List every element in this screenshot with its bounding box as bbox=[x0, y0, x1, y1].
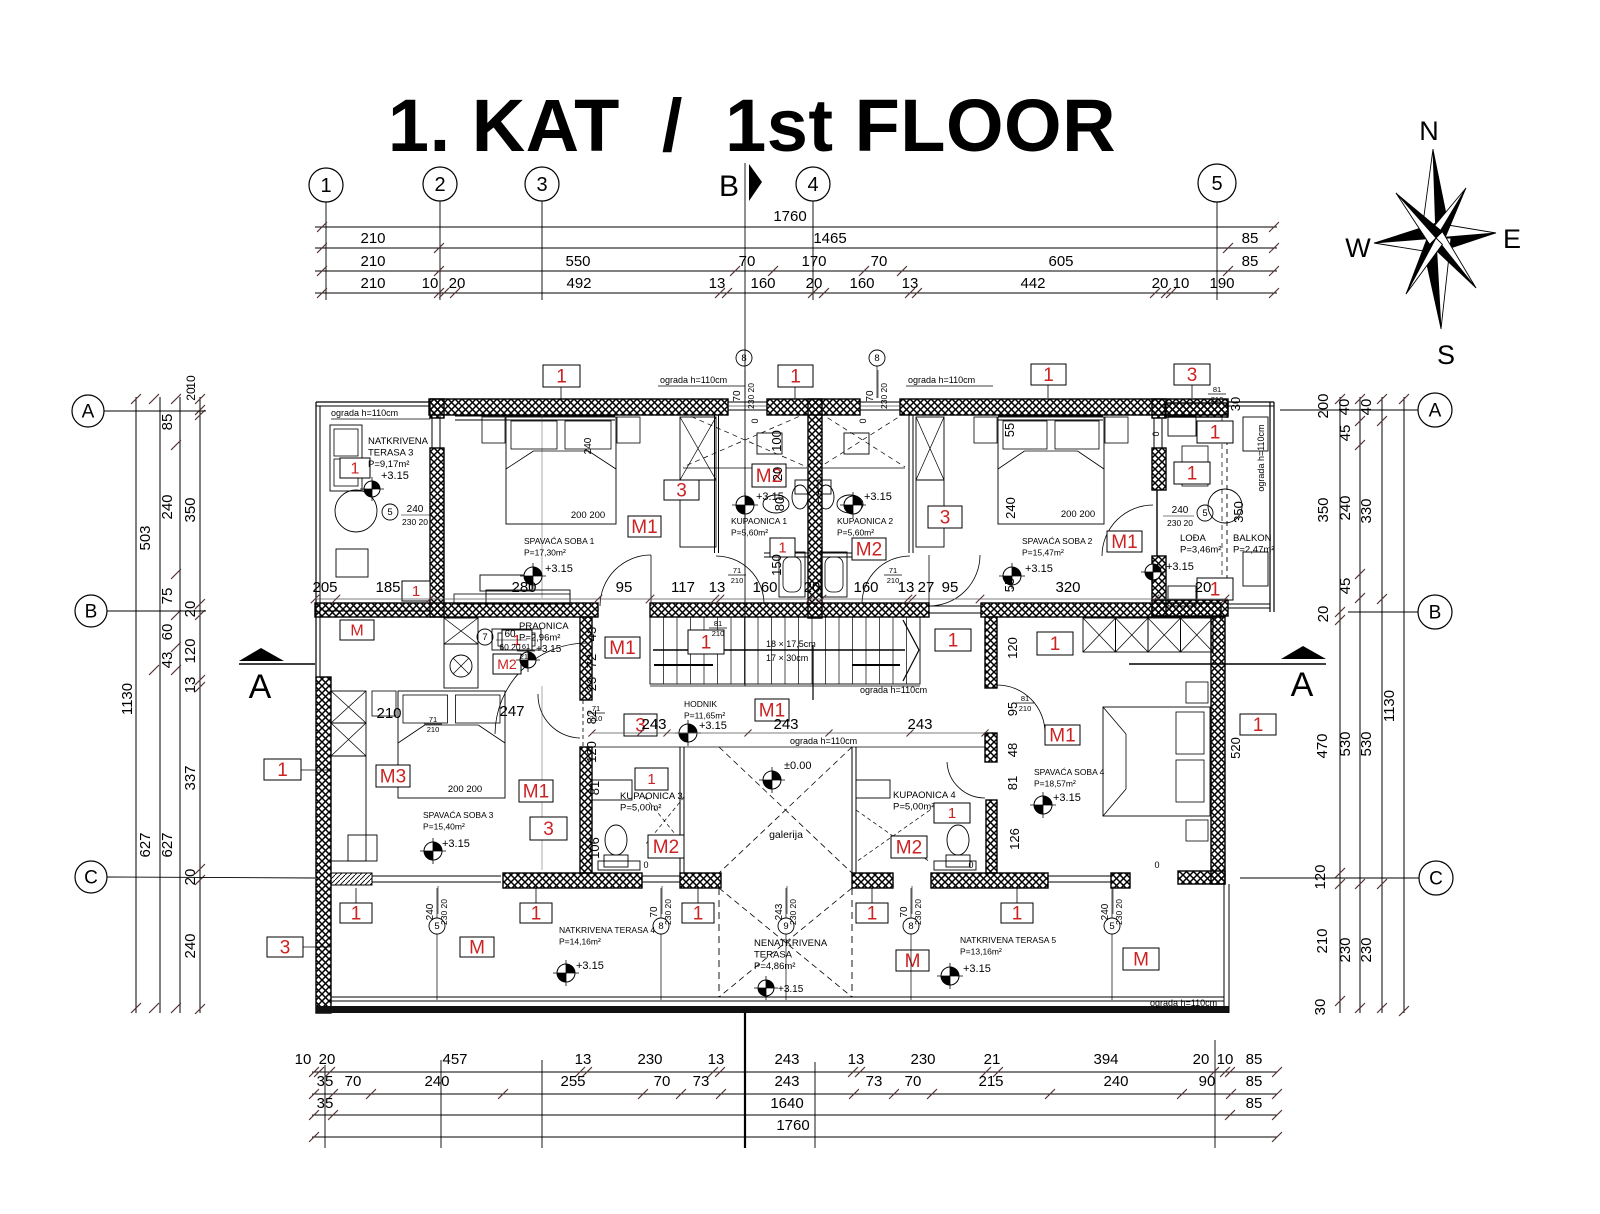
svg-text:1: 1 bbox=[948, 630, 959, 651]
svg-text:120: 120 bbox=[584, 741, 599, 763]
svg-text:73: 73 bbox=[693, 1073, 710, 1090]
svg-text:17 × 30cm: 17 × 30cm bbox=[766, 653, 808, 663]
svg-text:520: 520 bbox=[1228, 737, 1243, 759]
svg-text:35: 35 bbox=[317, 1095, 334, 1112]
svg-text:1: 1 bbox=[1253, 715, 1264, 736]
svg-text:160: 160 bbox=[750, 275, 775, 292]
svg-text:1: 1 bbox=[778, 540, 786, 557]
svg-text:85: 85 bbox=[1246, 1051, 1263, 1068]
svg-text:350: 350 bbox=[182, 497, 199, 522]
svg-text:8: 8 bbox=[874, 353, 879, 364]
svg-text:45: 45 bbox=[1337, 578, 1354, 595]
svg-text:A: A bbox=[1429, 401, 1442, 422]
svg-text:530: 530 bbox=[1358, 731, 1375, 756]
svg-text:200 200: 200 200 bbox=[1061, 509, 1095, 520]
svg-text:1. KAT / 1st FLOOR: 1. KAT / 1st FLOOR bbox=[388, 84, 1116, 167]
svg-text:0: 0 bbox=[643, 860, 648, 870]
svg-text:200 200: 200 200 bbox=[448, 784, 482, 795]
svg-text:1: 1 bbox=[531, 903, 542, 924]
svg-text:1: 1 bbox=[1210, 422, 1221, 443]
svg-text:45: 45 bbox=[1337, 425, 1354, 442]
svg-text:0: 0 bbox=[968, 860, 973, 870]
svg-text:23: 23 bbox=[584, 677, 599, 691]
svg-text:230 20: 230 20 bbox=[663, 899, 673, 925]
svg-text:0: 0 bbox=[858, 418, 868, 423]
svg-text:120: 120 bbox=[182, 638, 199, 663]
svg-text:3: 3 bbox=[676, 480, 687, 501]
svg-text:35: 35 bbox=[317, 1073, 334, 1090]
svg-text:81: 81 bbox=[587, 781, 602, 795]
svg-text:240: 240 bbox=[424, 1073, 449, 1090]
svg-text:SPAVAĆA SOBA 4: SPAVAĆA SOBA 4 bbox=[1034, 767, 1105, 777]
svg-text:72: 72 bbox=[584, 654, 599, 668]
svg-text:TERASA: TERASA bbox=[754, 950, 793, 961]
svg-text:B: B bbox=[1429, 603, 1442, 624]
svg-text:P=5,00m²: P=5,00m² bbox=[620, 803, 661, 814]
svg-text:85: 85 bbox=[1246, 1095, 1263, 1112]
svg-text:70: 70 bbox=[871, 253, 888, 270]
svg-text:M1: M1 bbox=[609, 638, 635, 659]
svg-text:210: 210 bbox=[1019, 704, 1032, 713]
svg-text:200 200: 200 200 bbox=[571, 510, 605, 521]
svg-text:20: 20 bbox=[1195, 579, 1212, 596]
svg-text:NATKRIVENA TERASA 4: NATKRIVENA TERASA 4 bbox=[559, 925, 655, 935]
svg-text:1: 1 bbox=[647, 771, 655, 788]
svg-text:470: 470 bbox=[1314, 733, 1331, 758]
svg-text:210: 210 bbox=[520, 652, 533, 661]
svg-text:1: 1 bbox=[701, 632, 712, 653]
svg-text:85: 85 bbox=[159, 414, 176, 431]
svg-text:21: 21 bbox=[984, 1051, 1001, 1068]
svg-text:190: 190 bbox=[1209, 275, 1234, 292]
svg-text:160: 160 bbox=[853, 579, 878, 596]
svg-text:+3.15: +3.15 bbox=[1166, 561, 1194, 573]
svg-text:1640: 1640 bbox=[770, 1095, 803, 1112]
svg-text:±0.00: ±0.00 bbox=[784, 760, 811, 772]
svg-text:20: 20 bbox=[1315, 606, 1332, 623]
svg-text:13: 13 bbox=[848, 1051, 865, 1068]
svg-text:85: 85 bbox=[1242, 230, 1259, 247]
svg-text:M: M bbox=[905, 951, 921, 972]
svg-text:NATKRIVENA TERASA 5: NATKRIVENA TERASA 5 bbox=[960, 935, 1056, 945]
svg-text:0: 0 bbox=[1151, 431, 1161, 436]
svg-text:70: 70 bbox=[345, 1073, 362, 1090]
svg-text:3: 3 bbox=[1187, 365, 1198, 386]
svg-text:3: 3 bbox=[280, 937, 291, 958]
svg-text:NENATKRIVENA: NENATKRIVENA bbox=[754, 938, 828, 949]
svg-text:240: 240 bbox=[407, 504, 424, 515]
svg-text:550: 550 bbox=[565, 253, 590, 270]
svg-text:S: S bbox=[1437, 340, 1455, 370]
svg-text:5: 5 bbox=[1211, 173, 1222, 195]
svg-text:230: 230 bbox=[1337, 937, 1354, 962]
svg-text:P=11,65m²: P=11,65m² bbox=[684, 711, 725, 721]
svg-text:210: 210 bbox=[376, 705, 401, 722]
svg-text:SPAVAĆA SOBA 3: SPAVAĆA SOBA 3 bbox=[423, 810, 494, 820]
svg-text:M1: M1 bbox=[1111, 532, 1137, 553]
svg-text:+3.15: +3.15 bbox=[442, 838, 470, 850]
svg-text:71: 71 bbox=[429, 715, 437, 724]
svg-text:70: 70 bbox=[905, 1073, 922, 1090]
svg-text:+3.15: +3.15 bbox=[381, 470, 409, 482]
svg-text:LOĐA: LOĐA bbox=[1180, 533, 1207, 544]
svg-text:P=2,47m²: P=2,47m² bbox=[1233, 545, 1274, 556]
svg-text:1: 1 bbox=[351, 903, 362, 924]
svg-text:M: M bbox=[1133, 949, 1149, 970]
svg-text:48: 48 bbox=[1005, 743, 1020, 757]
svg-text:BALKON: BALKON bbox=[1233, 533, 1272, 544]
svg-text:210: 210 bbox=[1314, 928, 1331, 953]
svg-text:240: 240 bbox=[1337, 495, 1354, 520]
svg-text:+3.15: +3.15 bbox=[864, 491, 892, 503]
svg-text:P=3,46m²: P=3,46m² bbox=[1180, 545, 1221, 556]
svg-text:TERASA 3: TERASA 3 bbox=[368, 448, 413, 459]
svg-text:240: 240 bbox=[1103, 1073, 1128, 1090]
svg-text:30: 30 bbox=[1228, 397, 1243, 411]
svg-text:126: 126 bbox=[1007, 828, 1022, 850]
svg-text:70: 70 bbox=[732, 390, 743, 402]
svg-text:95: 95 bbox=[616, 579, 633, 596]
svg-text:M1: M1 bbox=[631, 517, 657, 538]
svg-text:330: 330 bbox=[1358, 498, 1375, 523]
svg-text:13: 13 bbox=[902, 275, 919, 292]
svg-text:61: 61 bbox=[522, 642, 530, 651]
svg-text:73: 73 bbox=[866, 1073, 883, 1090]
svg-text:SPAVAĆA SOBA 2: SPAVAĆA SOBA 2 bbox=[1022, 536, 1093, 546]
svg-text:240: 240 bbox=[1100, 903, 1111, 920]
svg-text:P=4,86m²: P=4,86m² bbox=[754, 961, 795, 972]
svg-text:1: 1 bbox=[412, 583, 420, 600]
svg-text:KUPAONICA 2: KUPAONICA 2 bbox=[837, 516, 893, 526]
svg-text:160: 160 bbox=[849, 275, 874, 292]
svg-text:5: 5 bbox=[1202, 508, 1207, 519]
svg-text:43: 43 bbox=[159, 652, 176, 669]
svg-text:350: 350 bbox=[1315, 497, 1332, 522]
svg-text:1: 1 bbox=[790, 366, 801, 387]
svg-text:P=13,16m²: P=13,16m² bbox=[960, 947, 1002, 957]
svg-text:ograda h=110cm: ograda h=110cm bbox=[908, 375, 975, 385]
svg-text:20: 20 bbox=[806, 275, 823, 292]
svg-text:1: 1 bbox=[1043, 365, 1054, 386]
svg-text:85: 85 bbox=[1246, 1073, 1263, 1090]
svg-text:3: 3 bbox=[940, 507, 951, 528]
svg-text:3: 3 bbox=[543, 819, 554, 840]
svg-text:71: 71 bbox=[733, 566, 741, 575]
svg-text:1: 1 bbox=[351, 460, 360, 477]
svg-text:243: 243 bbox=[641, 716, 666, 733]
svg-text:60: 60 bbox=[159, 624, 176, 641]
svg-text:M2: M2 bbox=[653, 837, 679, 858]
svg-text:P=18,57m²: P=18,57m² bbox=[1034, 779, 1076, 789]
svg-text:1: 1 bbox=[1012, 903, 1023, 924]
svg-text:20: 20 bbox=[770, 467, 785, 481]
svg-text:80: 80 bbox=[772, 497, 787, 511]
svg-text:230: 230 bbox=[1358, 937, 1375, 962]
svg-text:+3.15: +3.15 bbox=[699, 720, 727, 732]
svg-text:1: 1 bbox=[948, 805, 956, 822]
svg-text:210: 210 bbox=[887, 576, 900, 585]
svg-text:81: 81 bbox=[1005, 776, 1020, 790]
svg-text:1: 1 bbox=[320, 175, 331, 197]
svg-text:KUPAONICA 4: KUPAONICA 4 bbox=[893, 790, 956, 801]
svg-text:71: 71 bbox=[889, 566, 897, 575]
svg-text:1130: 1130 bbox=[119, 683, 136, 715]
svg-text:95: 95 bbox=[942, 579, 959, 596]
svg-text:P=15,40m²: P=15,40m² bbox=[423, 822, 465, 832]
svg-text:70: 70 bbox=[739, 253, 756, 270]
svg-text:243: 243 bbox=[774, 1051, 799, 1068]
svg-text:PRAONICA: PRAONICA bbox=[519, 621, 569, 632]
svg-text:350: 350 bbox=[1231, 501, 1246, 523]
svg-text:240: 240 bbox=[1003, 497, 1018, 519]
svg-text:255: 255 bbox=[560, 1073, 585, 1090]
svg-text:C: C bbox=[84, 868, 98, 889]
svg-text:M: M bbox=[350, 622, 363, 639]
svg-text:1760: 1760 bbox=[773, 208, 806, 225]
svg-text:337: 337 bbox=[182, 765, 199, 790]
svg-text:20: 20 bbox=[182, 601, 199, 618]
svg-text:18 × 17,5cm: 18 × 17,5cm bbox=[766, 639, 816, 649]
svg-text:ograda h=110cm: ograda h=110cm bbox=[860, 685, 927, 695]
svg-text:243: 243 bbox=[774, 1073, 799, 1090]
svg-text:1130: 1130 bbox=[1381, 690, 1398, 722]
svg-text:13: 13 bbox=[709, 579, 726, 596]
svg-text:30: 30 bbox=[1312, 999, 1329, 1016]
svg-text:8: 8 bbox=[741, 353, 746, 364]
svg-text:150: 150 bbox=[769, 554, 784, 576]
svg-text:P=14,16m²: P=14,16m² bbox=[559, 937, 601, 947]
svg-text:243: 243 bbox=[773, 716, 798, 733]
svg-text:320: 320 bbox=[1055, 579, 1080, 596]
svg-text:230: 230 bbox=[637, 1051, 662, 1068]
svg-text:SPAVAĆA SOBA 1: SPAVAĆA SOBA 1 bbox=[524, 536, 595, 546]
svg-text:13: 13 bbox=[709, 275, 726, 292]
svg-text:230: 230 bbox=[910, 1051, 935, 1068]
svg-text:P=5,60m²: P=5,60m² bbox=[837, 528, 874, 538]
svg-text:120: 120 bbox=[1312, 864, 1329, 889]
svg-text:ograda h=110cm: ograda h=110cm bbox=[1150, 998, 1217, 1008]
svg-text:KUPAONICA 3: KUPAONICA 3 bbox=[620, 791, 683, 802]
svg-text:+3.15: +3.15 bbox=[576, 960, 604, 972]
svg-text:280: 280 bbox=[511, 579, 536, 596]
svg-text:215: 215 bbox=[978, 1073, 1003, 1090]
svg-text:627: 627 bbox=[137, 832, 154, 857]
svg-text:106: 106 bbox=[587, 837, 602, 859]
svg-text:10: 10 bbox=[184, 375, 198, 389]
svg-text:230 20: 230 20 bbox=[402, 517, 428, 527]
svg-text:M1: M1 bbox=[1049, 725, 1075, 746]
svg-text:170: 170 bbox=[801, 253, 826, 270]
svg-text:B: B bbox=[719, 170, 739, 203]
svg-text:70: 70 bbox=[865, 390, 876, 402]
svg-text:M: M bbox=[469, 937, 485, 958]
svg-text:10: 10 bbox=[1217, 1051, 1234, 1068]
svg-text:627: 627 bbox=[159, 832, 176, 857]
svg-text:70: 70 bbox=[649, 906, 660, 918]
svg-text:M3: M3 bbox=[380, 766, 406, 787]
svg-text:205: 205 bbox=[312, 579, 337, 596]
svg-text:117: 117 bbox=[671, 579, 695, 596]
svg-text:230 20: 230 20 bbox=[746, 383, 756, 409]
svg-text:90: 90 bbox=[1199, 1073, 1216, 1090]
svg-text:4: 4 bbox=[807, 174, 818, 196]
svg-text:240: 240 bbox=[182, 933, 199, 958]
svg-text:210: 210 bbox=[1211, 395, 1224, 404]
svg-text:1465: 1465 bbox=[813, 230, 846, 247]
svg-text:503: 503 bbox=[137, 525, 154, 550]
svg-text:71: 71 bbox=[592, 704, 600, 713]
svg-text:60 20: 60 20 bbox=[499, 642, 521, 652]
svg-text:ograda h=110cm: ograda h=110cm bbox=[660, 375, 727, 385]
svg-text:C: C bbox=[1429, 869, 1443, 890]
svg-text:230 20: 230 20 bbox=[1114, 899, 1124, 925]
svg-text:1: 1 bbox=[1187, 463, 1198, 484]
svg-text:20: 20 bbox=[319, 1051, 336, 1068]
svg-text:A: A bbox=[1291, 666, 1314, 704]
svg-text:230 20: 230 20 bbox=[788, 899, 798, 925]
svg-text:P=15,47m²: P=15,47m² bbox=[1022, 548, 1064, 558]
svg-text:60: 60 bbox=[504, 629, 516, 640]
svg-text:M1: M1 bbox=[523, 781, 549, 802]
svg-text:1760: 1760 bbox=[776, 1117, 809, 1134]
svg-text:230 20: 230 20 bbox=[913, 899, 923, 925]
svg-text:13: 13 bbox=[182, 677, 199, 694]
svg-text:75: 75 bbox=[159, 588, 176, 605]
svg-text:240: 240 bbox=[583, 437, 594, 454]
svg-text:81: 81 bbox=[1021, 694, 1029, 703]
svg-text:W: W bbox=[1345, 233, 1371, 263]
svg-text:230 20: 230 20 bbox=[1167, 518, 1193, 528]
svg-text:492: 492 bbox=[566, 275, 591, 292]
svg-text:ograda h=110cm: ograda h=110cm bbox=[790, 736, 857, 746]
svg-text:240: 240 bbox=[425, 903, 436, 920]
svg-text:NATKRIVENA: NATKRIVENA bbox=[368, 436, 429, 447]
svg-text:E: E bbox=[1503, 224, 1521, 254]
svg-text:27: 27 bbox=[918, 579, 935, 596]
svg-text:M2: M2 bbox=[856, 539, 882, 560]
svg-text:ograda h=110cm: ograda h=110cm bbox=[331, 408, 398, 418]
svg-text:81: 81 bbox=[1213, 385, 1221, 394]
svg-text:243: 243 bbox=[907, 716, 932, 733]
svg-text:210: 210 bbox=[427, 725, 440, 734]
svg-text:N: N bbox=[1419, 116, 1439, 146]
svg-text:KUPAONICA 1: KUPAONICA 1 bbox=[731, 516, 787, 526]
svg-text:457: 457 bbox=[442, 1051, 467, 1068]
svg-text:P=5,00m²: P=5,00m² bbox=[893, 802, 934, 813]
svg-text:240: 240 bbox=[159, 494, 176, 519]
svg-text:A: A bbox=[249, 668, 272, 706]
svg-text:210: 210 bbox=[360, 253, 385, 270]
svg-text:5: 5 bbox=[387, 507, 392, 518]
svg-text:1: 1 bbox=[1050, 634, 1061, 655]
svg-text:185: 185 bbox=[375, 579, 400, 596]
svg-text:530: 530 bbox=[1337, 731, 1354, 756]
svg-text:210: 210 bbox=[590, 714, 603, 723]
svg-text:2: 2 bbox=[434, 174, 445, 196]
svg-text:210: 210 bbox=[712, 629, 725, 638]
svg-text:40: 40 bbox=[1336, 399, 1353, 416]
svg-text:1: 1 bbox=[277, 760, 288, 781]
svg-text:P=17,30m²: P=17,30m² bbox=[524, 548, 566, 558]
svg-text:20: 20 bbox=[449, 275, 466, 292]
svg-text:210: 210 bbox=[731, 576, 744, 585]
svg-text:120: 120 bbox=[1005, 637, 1020, 659]
svg-text:55: 55 bbox=[1002, 578, 1017, 592]
svg-text:40: 40 bbox=[1358, 399, 1375, 416]
svg-text:20: 20 bbox=[1152, 275, 1169, 292]
svg-text:7: 7 bbox=[482, 632, 487, 643]
svg-text:230 20: 230 20 bbox=[879, 383, 889, 409]
svg-text:3: 3 bbox=[536, 174, 547, 196]
svg-text:A: A bbox=[82, 402, 95, 423]
svg-text:+3.15: +3.15 bbox=[536, 644, 562, 655]
svg-text:+3.15: +3.15 bbox=[1053, 792, 1081, 804]
svg-text:210: 210 bbox=[360, 275, 385, 292]
svg-text:P=9,17m²: P=9,17m² bbox=[368, 459, 409, 470]
svg-text:0: 0 bbox=[750, 418, 760, 423]
svg-text:ograda h=110cm: ograda h=110cm bbox=[1256, 424, 1266, 491]
svg-text:20: 20 bbox=[1193, 1051, 1210, 1068]
svg-text:1: 1 bbox=[693, 903, 704, 924]
svg-text:+3.15: +3.15 bbox=[1025, 563, 1053, 575]
svg-text:1: 1 bbox=[556, 366, 567, 387]
svg-text:81: 81 bbox=[714, 619, 722, 628]
svg-text:M2: M2 bbox=[497, 656, 517, 672]
svg-text:13: 13 bbox=[898, 579, 915, 596]
svg-text:394: 394 bbox=[1093, 1051, 1118, 1068]
svg-text:210: 210 bbox=[360, 230, 385, 247]
svg-text:13: 13 bbox=[708, 1051, 725, 1068]
svg-text:HODNIK: HODNIK bbox=[684, 699, 717, 709]
svg-text:160: 160 bbox=[752, 579, 777, 596]
svg-text:galerija: galerija bbox=[769, 829, 803, 841]
svg-text:240: 240 bbox=[1172, 505, 1189, 516]
svg-text:M2: M2 bbox=[896, 837, 922, 858]
svg-text:10: 10 bbox=[295, 1051, 312, 1068]
svg-text:20: 20 bbox=[804, 579, 821, 596]
svg-text:230 20: 230 20 bbox=[439, 899, 449, 925]
svg-text:+3.15: +3.15 bbox=[545, 563, 573, 575]
svg-text:0: 0 bbox=[1154, 860, 1159, 870]
svg-text:243: 243 bbox=[774, 903, 785, 920]
svg-text:+3.15: +3.15 bbox=[778, 984, 804, 995]
svg-text:1: 1 bbox=[867, 903, 878, 924]
svg-text:442: 442 bbox=[1020, 275, 1045, 292]
svg-text:P=5,60m²: P=5,60m² bbox=[731, 528, 768, 538]
svg-text:605: 605 bbox=[1048, 253, 1073, 270]
svg-text:247: 247 bbox=[499, 703, 524, 720]
svg-text:B: B bbox=[85, 602, 98, 623]
svg-text:200: 200 bbox=[1315, 393, 1332, 418]
svg-text:70: 70 bbox=[654, 1073, 671, 1090]
svg-text:10: 10 bbox=[1173, 275, 1190, 292]
svg-text:43: 43 bbox=[584, 627, 599, 641]
svg-text:70: 70 bbox=[899, 906, 910, 918]
svg-text:85: 85 bbox=[1242, 253, 1259, 270]
svg-text:55: 55 bbox=[1002, 423, 1017, 437]
svg-text:13: 13 bbox=[575, 1051, 592, 1068]
svg-text:100: 100 bbox=[769, 430, 784, 452]
svg-text:10: 10 bbox=[422, 275, 439, 292]
svg-text:+3.15: +3.15 bbox=[963, 963, 991, 975]
